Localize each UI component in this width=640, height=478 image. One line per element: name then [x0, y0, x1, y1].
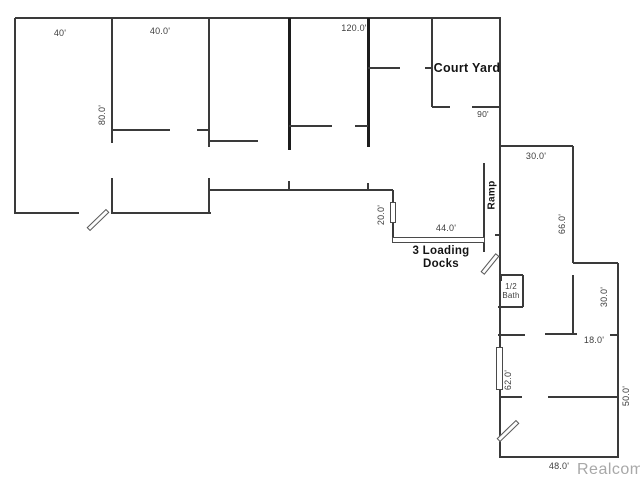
label-dim-62: 62.0'	[503, 370, 513, 390]
wall-segment	[15, 212, 79, 214]
wall-segment	[367, 18, 370, 147]
wall-segment	[111, 178, 113, 214]
wall-segment	[617, 263, 619, 458]
wall-segment	[522, 275, 524, 307]
wall-segment	[572, 275, 574, 335]
label-loading-docks: 3 Loading Docks	[412, 245, 469, 271]
wall-segment	[289, 125, 332, 127]
label-dim-44: 44.0'	[436, 223, 456, 233]
wall-segment	[209, 140, 258, 142]
label-dim-66: 66.0'	[557, 214, 567, 234]
label-half-bath: 1/2 Bath	[502, 282, 519, 300]
wall-segment	[209, 189, 393, 191]
wall-segment	[288, 18, 291, 150]
label-dim-120: 120.0'	[341, 23, 366, 33]
wall-segment	[573, 262, 618, 264]
label-dim-40-0: 40.0'	[150, 26, 170, 36]
dock-doors-front-opening	[392, 237, 485, 243]
wall-segment	[500, 275, 502, 281]
wall-segment	[548, 396, 618, 398]
floor-plan: Realcomp 40'40.0'120.0'Court Yard90'30.0…	[0, 0, 640, 478]
wall-segment	[500, 145, 573, 147]
wall-segment	[610, 334, 618, 336]
label-dim-20: 20.0'	[376, 205, 386, 225]
label-dim-50: 50.0'	[621, 386, 631, 406]
wall-segment	[112, 212, 211, 214]
wall-segment	[208, 178, 210, 213]
wall-segment	[15, 17, 501, 19]
wall-segment	[498, 334, 525, 336]
wall-segment	[14, 18, 16, 214]
wall-segment	[499, 390, 501, 458]
dock-door-side-opening	[390, 202, 396, 223]
wall-segment	[355, 125, 368, 127]
label-dim-80: 80.0'	[97, 105, 107, 125]
wall-segment	[111, 18, 113, 143]
label-dim-90: 90'	[477, 110, 489, 120]
ramp-door-swing-icon	[480, 253, 499, 275]
wall-segment	[432, 106, 450, 108]
realcomp-watermark: Realcomp	[577, 461, 640, 478]
label-dim-30-top: 30.0'	[526, 151, 546, 161]
wall-segment	[500, 396, 522, 398]
label-dim-40: 40'	[54, 28, 66, 38]
wall-segment	[208, 18, 210, 147]
wall-segment	[545, 333, 577, 335]
label-dim-48: 48.0'	[549, 461, 569, 471]
entry-door-left-swing-icon	[86, 209, 109, 231]
wall-segment	[500, 274, 523, 276]
wall-segment	[495, 234, 500, 236]
wall-segment	[572, 146, 574, 263]
label-dim-18: 18.0'	[584, 335, 604, 345]
wall-segment	[498, 306, 523, 308]
wall-segment	[425, 67, 432, 69]
wall-segment	[197, 129, 209, 131]
wall-segment	[368, 67, 400, 69]
label-dim-30-right: 30.0'	[599, 287, 609, 307]
label-ramp: Ramp	[486, 181, 498, 210]
wall-segment	[500, 456, 618, 458]
label-court-yard: Court Yard	[434, 61, 501, 75]
wall-segment	[113, 129, 170, 131]
wall-segment	[472, 106, 501, 108]
